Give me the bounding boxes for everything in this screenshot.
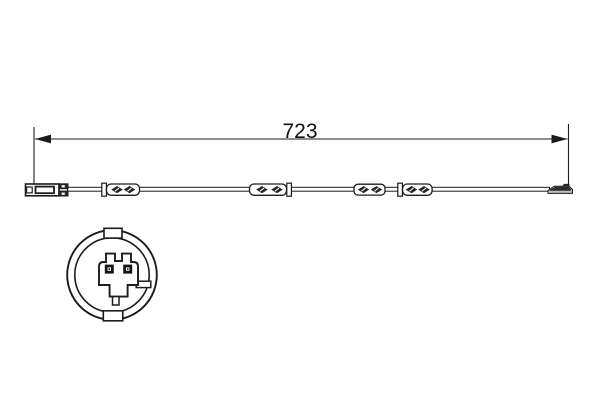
splice-band bbox=[398, 183, 403, 196]
pin-core bbox=[109, 268, 111, 270]
key-stem-bottom bbox=[113, 297, 120, 305]
cable-splice-3 bbox=[354, 184, 385, 195]
cable-splice-2 bbox=[250, 183, 292, 196]
arrowhead-left-icon bbox=[35, 135, 51, 144]
sensor-tip-nub bbox=[562, 184, 570, 187]
pin-right bbox=[123, 265, 132, 274]
pin-core bbox=[127, 268, 129, 270]
dimension-annotation: 723 bbox=[34, 120, 569, 191]
cable-assembly-side-view bbox=[26, 183, 573, 196]
left-connector bbox=[26, 184, 69, 197]
dimension-value-label: 723 bbox=[282, 120, 317, 143]
cable-splice-1 bbox=[102, 183, 140, 196]
splice-band bbox=[102, 183, 107, 196]
arrowhead-right-icon bbox=[552, 135, 568, 144]
sensor-technical-drawing: 723 bbox=[0, 0, 600, 400]
pin-left bbox=[105, 265, 114, 274]
clip-highlight-bottom bbox=[62, 193, 65, 195]
sensor-tip bbox=[548, 184, 573, 194]
connector-face-view bbox=[67, 228, 157, 320]
key-tab-top bbox=[104, 228, 122, 238]
key-tab-bottom bbox=[103, 311, 123, 321]
connector-latch-notch bbox=[27, 187, 33, 193]
connector-window bbox=[36, 187, 55, 194]
technical-drawing-page: 723 bbox=[0, 0, 600, 400]
clip-highlight-top bbox=[62, 185, 65, 187]
cable-splice-4 bbox=[398, 183, 432, 196]
splice-band bbox=[287, 183, 292, 196]
